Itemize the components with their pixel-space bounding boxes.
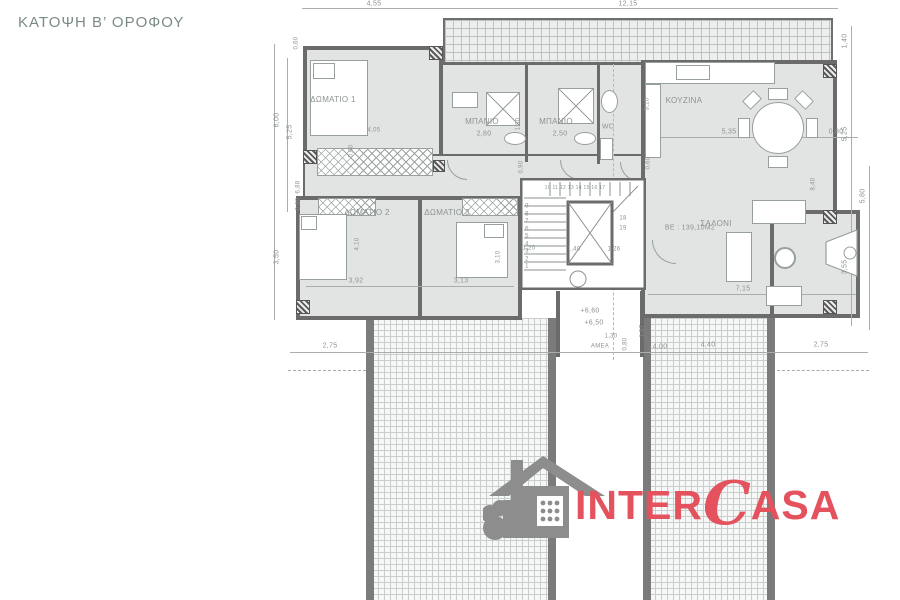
logo-text-asa: ASA: [751, 482, 841, 528]
wall-bedroom2-3: [418, 198, 422, 318]
dining-chair-4: [806, 118, 818, 138]
room-label-bedroom3: ΔΩΜΑΤΙΟ 3: [424, 208, 469, 218]
dim-bedroom2-410: 4,10: [354, 238, 362, 251]
dim-line-bottom: [290, 352, 868, 353]
dim-bath-180: 1,80: [515, 118, 523, 131]
dim-right-580: 5,80: [860, 189, 869, 204]
dim-line-right-2: [869, 166, 870, 330]
intercasa-logo: INTERCASA: [483, 452, 873, 552]
dim-bottom-275-right: 2,75: [814, 342, 829, 351]
dim-bottom-130: 1,30: [605, 333, 618, 341]
wardrobe3-symbol: [462, 198, 518, 216]
room-label-bedroom2: ΔΩΜΑΤΙΟ 2: [344, 208, 389, 218]
dim-left-525: 5,25: [287, 125, 296, 140]
dim-right-355: 3,55: [842, 260, 851, 275]
room-label-bath2: ΜΠΑΝΙΟ: [539, 117, 573, 127]
dim-line-left-1: [274, 44, 275, 320]
dim-living-840: 8,40: [810, 178, 818, 191]
column-2: [303, 150, 317, 164]
dim-kitchen-060: 0,60: [645, 157, 653, 170]
kitchen-counter: [645, 62, 775, 84]
logo-text-c: C: [703, 469, 751, 539]
dashed-line-left: [288, 370, 366, 371]
stair-numbers-left: 9 8 7 6 5 4 3 2 1: [525, 203, 529, 271]
sofa1-symbol: [752, 200, 806, 224]
column-9: [823, 64, 837, 78]
dim-top-right: 12,15: [618, 1, 637, 10]
dim-stair-140: 1,40: [568, 246, 581, 254]
bed1-pillow: [313, 63, 335, 79]
dim-left-688: 6,88: [295, 181, 303, 194]
bed2-pillow: [301, 216, 317, 230]
dim-living-715: 7,15: [736, 286, 751, 295]
bathrooms-block: [440, 62, 645, 164]
sink1-symbol: [452, 92, 478, 108]
stair-number-18: 18: [619, 215, 626, 223]
balcony-top: [443, 18, 833, 66]
level-660: +6,60: [580, 308, 599, 317]
staircase: [520, 178, 646, 290]
wall-bath1-2: [525, 64, 528, 162]
dashed-line-right: [777, 370, 869, 371]
dim-living-080: 0,80: [829, 129, 844, 138]
wall-strip-left-a: [366, 318, 374, 600]
dining-chair-1: [768, 88, 788, 100]
dining-chair-2: [768, 156, 788, 168]
level-650: +6,50: [584, 320, 603, 329]
dim-bath2-250: 2,50: [553, 131, 568, 140]
dim-left-350: 3,50: [274, 250, 283, 265]
dim-line-top: [302, 8, 838, 9]
dim-bedroom3-310: 3,10: [495, 251, 503, 264]
toilet1-symbol: [504, 132, 526, 145]
dim-bath-090: 0,90: [518, 161, 526, 174]
column-10: [823, 210, 837, 224]
column-3: [296, 300, 310, 314]
column-4: [433, 160, 445, 172]
dim-bedroom3-313: 3,13: [454, 278, 469, 287]
logo-text: INTERCASA: [575, 482, 840, 529]
dim-bath1-280: 2,80: [477, 131, 492, 140]
room-label-kitchen: ΚΟΥΖΙΝΑ: [666, 96, 703, 106]
dim-living-535: 5,35: [722, 129, 737, 138]
dim-bottom-275-left: 2,75: [323, 343, 338, 352]
column-12: [823, 300, 837, 314]
dim-left-060: 0,60: [293, 37, 301, 50]
kitchen-sink-symbol: [676, 65, 710, 80]
dim-right-140: 1,40: [842, 34, 851, 49]
dining-table-symbol: [752, 102, 804, 154]
dim-ward-060: 0,60: [348, 145, 356, 158]
wc-sink-symbol: [600, 138, 613, 160]
room-label-bedroom1: ΔΩΜΑΤΙΟ 1: [310, 95, 355, 105]
dim-line-bedrooms: [306, 286, 514, 287]
column-1: [429, 46, 443, 60]
dim-line-right-1: [851, 26, 852, 326]
toilet2-symbol: [574, 132, 596, 145]
room-label-bath1: ΜΠΑΝΙΟ: [465, 117, 499, 127]
kitchen-side-counter: [645, 84, 661, 158]
dim-bedroom1-405: 4,05: [368, 127, 381, 135]
floorplan-canvas: ΚΑΤΟΨΗ Β’ ΟΡΟΦΟΥ: [0, 0, 900, 600]
dim-stair-126: 1,26: [608, 246, 621, 254]
amea-label: ΑΜΕΑ: [591, 343, 609, 351]
dim-bedroom2-392: 3,92: [349, 278, 364, 287]
dim-left-080: 0,80: [295, 198, 303, 211]
area-label: ΒΕ : 139,10Μ2: [665, 225, 715, 234]
room-label-wc: WC: [602, 124, 614, 133]
dim-kitchen-310: 3,10: [644, 98, 652, 111]
bed3-pillow: [484, 224, 504, 238]
coffee-table-symbol: [766, 286, 802, 306]
dim-top-left: 4,55: [367, 1, 382, 10]
dim-landing-157: 1,57: [639, 325, 647, 338]
dim-left-600: 6,00: [274, 113, 283, 128]
wardrobe1-symbol: [317, 148, 433, 176]
round-table-symbol: [774, 247, 796, 269]
stair-numbers-top: 10 11 12 13 14 15 16 17: [545, 185, 606, 191]
dim-bottom-400: 4,00: [653, 344, 668, 353]
dim-amea-080: 0,80: [622, 338, 630, 351]
page-title: ΚΑΤΟΨΗ Β’ ΟΡΟΦΟΥ: [18, 14, 184, 31]
logo-text-inter: INTER: [575, 482, 703, 528]
dim-line-living-715: [648, 294, 856, 295]
sofa2-symbol: [726, 232, 752, 282]
dim-bottom-440: 4,40: [701, 342, 716, 351]
stair-number-19: 19: [619, 225, 626, 233]
wc-toilet-symbol: [601, 90, 618, 113]
dining-chair-3: [738, 118, 750, 138]
